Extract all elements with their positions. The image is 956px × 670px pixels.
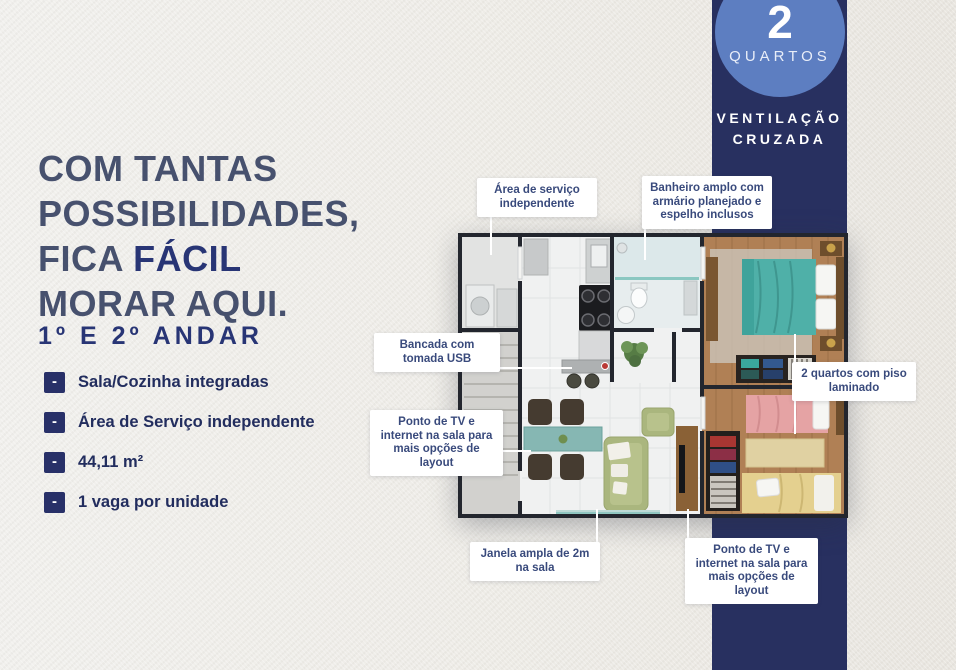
main-headline: COM TANTAS POSSIBILIDADES, FICA FÁCIL MO…	[38, 146, 360, 326]
callout-line-ponto-tv	[501, 450, 531, 452]
callout-line-janela	[596, 509, 598, 544]
list-item: - Área de Serviço independente	[44, 412, 315, 433]
floorplan-render	[458, 233, 848, 518]
bathroom-sink	[618, 307, 635, 324]
kitchen-cabinet	[524, 239, 548, 275]
shower-head	[617, 243, 627, 253]
bullet-square-icon: -	[44, 452, 65, 473]
callout-line-ponto-tv-2	[687, 509, 689, 540]
feature-label: 1 vaga por unidade	[78, 493, 228, 512]
toilet	[631, 288, 647, 308]
floor-subtitle: 1º E 2º ANDAR	[38, 322, 263, 351]
sofa	[604, 437, 648, 511]
bedroom2-rug	[746, 439, 824, 467]
shower-glass	[615, 277, 699, 280]
dresser	[706, 257, 718, 341]
callout-bancada-usb: Bancada com tomada USB	[374, 333, 500, 372]
headline-line2: POSSIBILIDADES,	[38, 193, 360, 234]
tv-panel	[676, 426, 698, 511]
bedrooms-count: 2	[767, 0, 793, 45]
bullet-square-icon: -	[44, 412, 65, 433]
vent-line1: VENTILAÇÃO	[712, 108, 847, 129]
callout-ponto-tv-2: Ponto de TV e internet na sala para mais…	[685, 538, 818, 604]
headline-line4: MORAR AQUI.	[38, 283, 288, 324]
bullet-square-icon: -	[44, 492, 65, 513]
wardrobe-2	[706, 431, 740, 511]
vent-line2: CRUZADA	[712, 129, 847, 150]
washing-machine	[471, 297, 489, 315]
feature-label: Sala/Cozinha integradas	[78, 373, 269, 392]
brochure-page: 2 QUARTOS VENTILAÇÃO CRUZADA COM TANTAS …	[0, 0, 956, 670]
headline-line1: COM TANTAS	[38, 148, 278, 189]
feature-list: - Sala/Cozinha integradas - Área de Serv…	[44, 372, 315, 532]
callout-janela-ampla: Janela ampla de 2m na sala	[470, 542, 600, 581]
callout-line-area-servico	[490, 211, 492, 255]
bed-yellow	[742, 473, 841, 513]
armchair	[642, 408, 674, 436]
callout-quartos-piso: 2 quartos com piso laminado	[792, 362, 916, 401]
callout-banheiro: Banheiro amplo com armário planejado e e…	[642, 176, 772, 229]
floorplan	[458, 233, 848, 518]
bathroom	[613, 237, 701, 328]
callout-ponto-tv-sala: Ponto de TV e internet na sala para mais…	[370, 410, 503, 476]
laundry-sink	[497, 289, 517, 327]
bathroom-vanity	[684, 281, 697, 315]
list-item: - Sala/Cozinha integradas	[44, 372, 315, 393]
callout-line-bancada	[498, 367, 572, 369]
bedrooms-label: QUARTOS	[729, 48, 831, 65]
feature-label: Área de Serviço independente	[78, 413, 315, 432]
feature-label: 44,11 m²	[78, 453, 143, 472]
headline-line3-prefix: FICA	[38, 238, 133, 279]
kitchen-sink	[591, 245, 607, 267]
list-item: - 1 vaga por unidade	[44, 492, 315, 513]
list-item: - 44,11 m²	[44, 452, 315, 473]
cross-ventilation-label: VENTILAÇÃO CRUZADA	[712, 108, 847, 150]
stove	[579, 285, 613, 331]
bullet-square-icon: -	[44, 372, 65, 393]
callout-area-servico: Área de serviço independente	[477, 178, 597, 217]
headline-emphasis: FÁCIL	[133, 238, 241, 279]
